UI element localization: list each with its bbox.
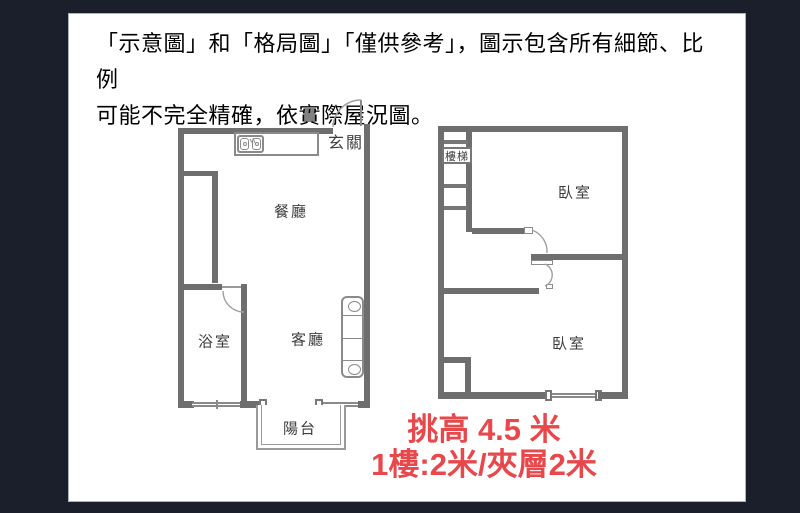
stair-tread bbox=[444, 206, 468, 210]
room-label-dining: 餐廳 bbox=[274, 201, 308, 222]
wall bbox=[598, 392, 628, 399]
sofa-pillow bbox=[348, 301, 361, 312]
height-note-line-1: 挑高 4.5 米 bbox=[319, 412, 649, 447]
room-label-living: 客廳 bbox=[291, 329, 325, 350]
sofa-pillow bbox=[348, 364, 361, 375]
door-threshold bbox=[222, 286, 242, 288]
wall bbox=[472, 228, 528, 234]
sink-drain bbox=[255, 142, 259, 146]
sofa-icon bbox=[341, 296, 364, 378]
wall bbox=[358, 401, 370, 408]
room-label-stairs: 樓梯 bbox=[442, 147, 472, 164]
disclaimer-line-1: 「示意圖」和「格局圖」「僅供參考」，圖示包含所有細節、比例 bbox=[96, 26, 726, 98]
wall bbox=[178, 128, 184, 408]
stairs-label-text: 樓梯 bbox=[445, 148, 469, 164]
wall bbox=[444, 288, 539, 294]
room-label-bath: 浴室 bbox=[198, 331, 232, 352]
door-frame-stub bbox=[524, 227, 533, 234]
door-leaf bbox=[360, 100, 362, 126]
door-arc-bedroom-lower bbox=[545, 264, 552, 286]
height-note-line-2: 1樓:2米/夾層2米 bbox=[319, 447, 649, 482]
disclaimer-text: 「示意圖」和「格局圖」「僅供參考」，圖示包含所有細節、比例 可能不完全精確，依實… bbox=[96, 26, 726, 134]
room-label-balcony: 陽台 bbox=[283, 418, 317, 439]
room-label-bedroom-lower: 臥室 bbox=[552, 333, 586, 354]
door-arc-bedroom-upper bbox=[532, 230, 547, 253]
wall bbox=[622, 126, 628, 399]
wall bbox=[465, 357, 471, 399]
wall bbox=[241, 284, 247, 408]
floorplan-panel: 「示意圖」和「格局圖」「僅供參考」，圖示包含所有細節、比例 可能不完全精確，依實… bbox=[68, 13, 746, 502]
stair-tread bbox=[444, 140, 468, 144]
room-label-entry: 玄關 bbox=[328, 129, 364, 153]
stair-tread bbox=[444, 184, 468, 188]
wall bbox=[364, 124, 370, 408]
window-post bbox=[545, 390, 552, 401]
door-leaf bbox=[531, 260, 553, 265]
window bbox=[548, 393, 598, 398]
page-background: 「示意圖」和「格局圖」「僅供參考」，圖示包含所有細節、比例 可能不完全精確，依實… bbox=[0, 0, 800, 513]
sink-drain bbox=[243, 142, 247, 146]
wall bbox=[212, 171, 218, 283]
wall bbox=[184, 284, 222, 290]
height-note: 挑高 4.5 米 1樓:2米/夾層2米 bbox=[319, 412, 649, 482]
wall bbox=[438, 392, 548, 399]
window-mullion bbox=[216, 400, 218, 409]
door-frame-stub bbox=[546, 284, 553, 289]
room-label-bedroom-upper: 臥室 bbox=[558, 182, 592, 203]
